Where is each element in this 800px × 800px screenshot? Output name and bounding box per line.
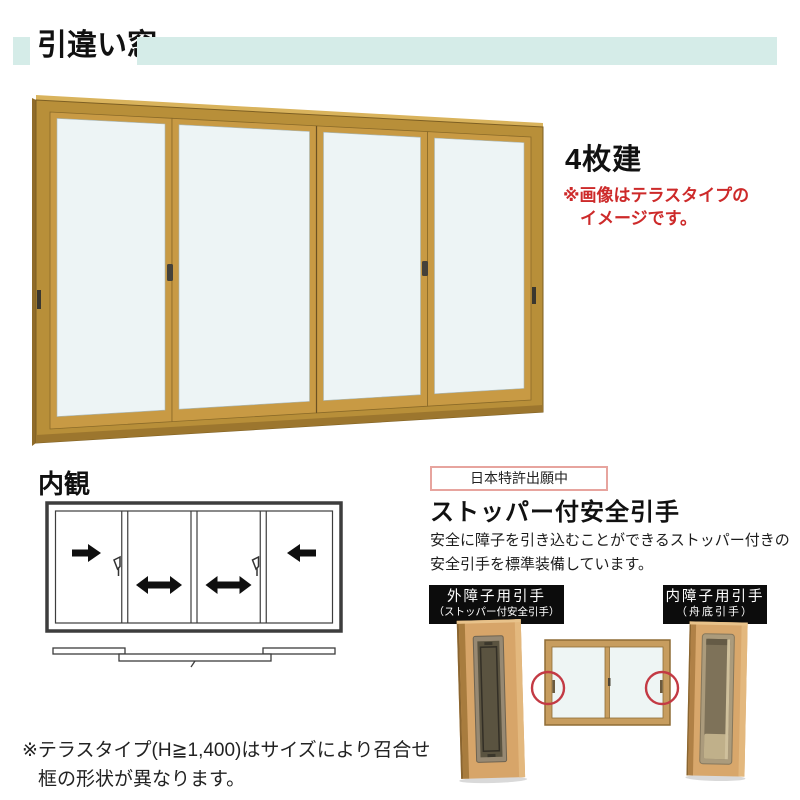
recess-top-shade xyxy=(706,639,730,646)
outer-handle-label-line2: （ストッパー付安全引手） xyxy=(429,606,564,619)
feature-heading: ストッパー付安全引手 xyxy=(430,492,680,527)
inner-handle-photo xyxy=(681,621,752,782)
footer-note-line1: ※テラスタイプ(H≧1,400)はサイズにより召合せ xyxy=(22,736,430,765)
patent-badge: 日本特許出願中 xyxy=(430,466,608,491)
accent-band xyxy=(137,37,777,65)
edge-pull-icon xyxy=(532,287,536,304)
window-frame-left-edge xyxy=(32,98,36,446)
sash-handle-icon xyxy=(167,264,173,281)
outer-handle-photo xyxy=(451,619,532,785)
mini-handle-dot xyxy=(608,678,611,686)
accent-square xyxy=(13,37,30,65)
glass-pane xyxy=(57,118,165,416)
inner-handle-label: 内障子用引手 （舟底引手） xyxy=(663,585,767,624)
inner-handle-label-line1: 内障子用引手 xyxy=(663,589,767,606)
photo-note: ※画像はテラスタイプの イメージです。 xyxy=(563,184,749,230)
mini-edge-handle xyxy=(553,680,556,693)
feature-description-line2: 安全引手を標準装備しています。 xyxy=(430,553,790,577)
main-window-photo xyxy=(20,85,565,465)
inner-handle-label-line2: （舟底引手） xyxy=(663,606,767,619)
handle-position-diagram xyxy=(530,634,676,730)
product-page: 引違い窓 4枚建 ※画像はテラスタイプの イメージです。 xyxy=(0,0,800,800)
plan-view-tracks xyxy=(53,648,335,667)
glass-pane xyxy=(179,125,310,410)
mini-edge-handle xyxy=(660,680,663,693)
glass-pane xyxy=(435,138,525,394)
footer-note: ※テラスタイプ(H≧1,400)はサイズにより召合せ 框の形状が異なります。 xyxy=(22,736,430,794)
edge-pull-icon xyxy=(37,290,41,309)
diagram-outer-frame xyxy=(47,503,341,631)
outer-handle-label-line1: 外障子用引手 xyxy=(429,589,564,606)
recess-bottom-light xyxy=(704,734,729,759)
sash-handle-icon xyxy=(422,261,428,276)
feature-description: 安全に障子を引き込むことができるストッパー付きの 安全引手を標準装備しています。 xyxy=(430,529,790,577)
footer-note-line2: 框の形状が異なります。 xyxy=(22,765,430,794)
photo-note-line1: ※画像はテラスタイプの xyxy=(563,184,749,207)
handle-notch xyxy=(484,642,492,645)
glass-pane xyxy=(324,132,421,400)
photo-note-line2: イメージです。 xyxy=(563,207,749,230)
feature-description-line1: 安全に障子を引き込むことができるストッパー付きの xyxy=(430,529,790,553)
interior-view-title: 内観 xyxy=(38,464,90,501)
outer-handle-label: 外障子用引手 （ストッパー付安全引手） xyxy=(429,585,564,624)
interior-view-diagram xyxy=(45,500,345,672)
handle-notch xyxy=(487,754,495,757)
panel-count-label: 4枚建 xyxy=(565,136,642,178)
